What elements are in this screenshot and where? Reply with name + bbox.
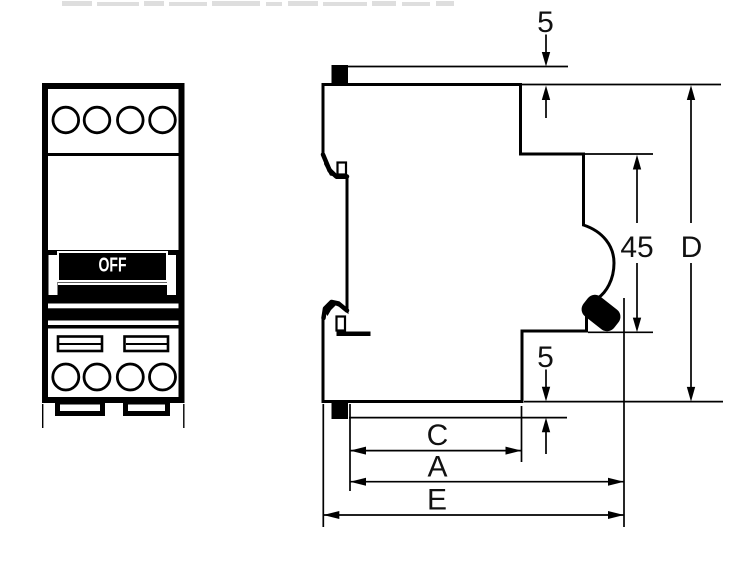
arrowhead xyxy=(350,447,366,455)
label-band-gap xyxy=(48,304,179,309)
terminal-tab-top xyxy=(332,65,349,85)
arrowhead xyxy=(633,155,641,170)
terminal-port xyxy=(84,107,110,133)
terminal-tab-bottom xyxy=(332,402,349,419)
dimension-label-e: E xyxy=(427,484,447,517)
label-band-gap xyxy=(48,321,179,326)
cropped-caption-artifact xyxy=(62,1,454,6)
toggle-recess: OFF xyxy=(48,250,179,329)
terminal-port xyxy=(117,364,143,390)
hook-notch xyxy=(337,317,346,331)
arrowhead xyxy=(608,478,624,486)
dimension-label-bottom-5: 5 xyxy=(537,341,554,374)
terminal-port xyxy=(150,364,176,390)
arrowhead xyxy=(542,52,550,67)
arrowhead xyxy=(687,387,695,402)
hook-notch xyxy=(338,163,347,175)
off-label: OFF xyxy=(99,255,127,277)
front-view: OFF xyxy=(43,86,184,428)
terminal-port xyxy=(53,107,79,133)
arrowhead xyxy=(542,418,550,433)
recess-notch-left xyxy=(49,255,58,295)
dimension-e: E xyxy=(323,404,624,527)
dimension-label-45: 45 xyxy=(620,231,653,264)
side-view xyxy=(323,65,624,419)
dimension-label-c: C xyxy=(427,419,449,452)
arrowhead xyxy=(506,447,522,455)
dimension-label-a: A xyxy=(427,451,447,484)
terminal-port xyxy=(150,107,176,133)
terminal-port xyxy=(53,364,79,390)
arrowhead xyxy=(608,511,624,519)
clip-slider-bar xyxy=(337,332,371,337)
mounting-feet xyxy=(58,402,168,414)
arrowhead xyxy=(687,85,695,100)
recess-notch-right xyxy=(167,255,176,295)
side-profile-outline xyxy=(323,85,614,402)
terminal-port xyxy=(84,364,110,390)
mounting-foot xyxy=(58,402,103,414)
arrowhead xyxy=(542,86,550,101)
dimension-label-top-5: 5 xyxy=(537,6,554,39)
mounting-foot xyxy=(126,402,168,414)
arrowhead xyxy=(350,478,366,486)
dimension-label-d: D xyxy=(681,231,703,264)
arrowhead xyxy=(542,387,550,402)
terminal-port xyxy=(118,107,144,133)
arrowhead xyxy=(633,318,641,333)
technical-drawing-canvas: OFF xyxy=(0,0,745,573)
arrowhead xyxy=(323,511,339,519)
technical-drawing-page: OFF xyxy=(0,0,745,573)
